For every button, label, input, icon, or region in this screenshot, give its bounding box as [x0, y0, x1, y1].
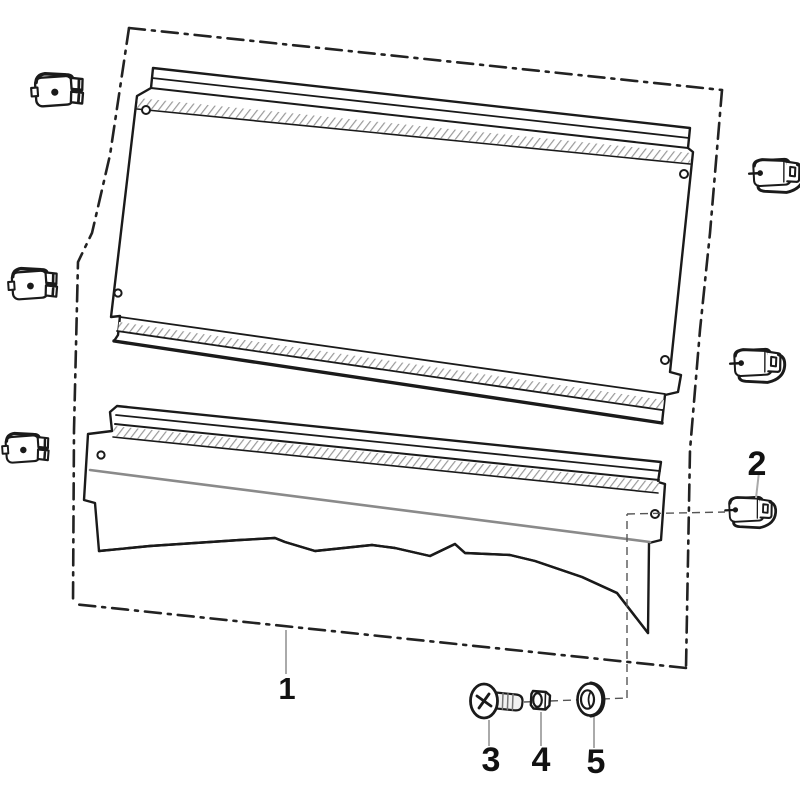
parts-diagram-svg: 1 2 3 4 5: [0, 0, 800, 800]
lower-panel: [84, 406, 665, 633]
callout-label-1: 1: [278, 671, 295, 706]
nut-part: [531, 691, 550, 710]
clamp-right-top: [748, 158, 800, 195]
clamp-part-2: [725, 495, 777, 529]
callout-label-3: 3: [482, 741, 501, 779]
clamp-left-bottom: [1, 431, 49, 463]
boundary-bottom-edge: [73, 604, 686, 668]
upper-hole-bottom-left: [114, 289, 121, 296]
upper-hole-bottom-right: [661, 356, 669, 364]
clamp-left-middle: [7, 266, 58, 300]
upper-panel: [111, 68, 693, 423]
washer-part: [578, 684, 604, 716]
upper-hole-top-left: [142, 106, 150, 114]
callout-label-5: 5: [587, 743, 606, 781]
callout-label-2: 2: [748, 445, 767, 483]
clamp-left-top: [30, 71, 84, 107]
nut-flat-line: [545, 693, 546, 710]
upper-hole-top-right: [680, 170, 688, 178]
clamp-right-middle: [729, 348, 785, 385]
screw-part: [471, 684, 523, 718]
parts-diagram-canvas: 1 2 3 4 5: [0, 0, 800, 800]
lower-hole-left: [97, 451, 104, 458]
callout-label-4: 4: [532, 741, 551, 779]
